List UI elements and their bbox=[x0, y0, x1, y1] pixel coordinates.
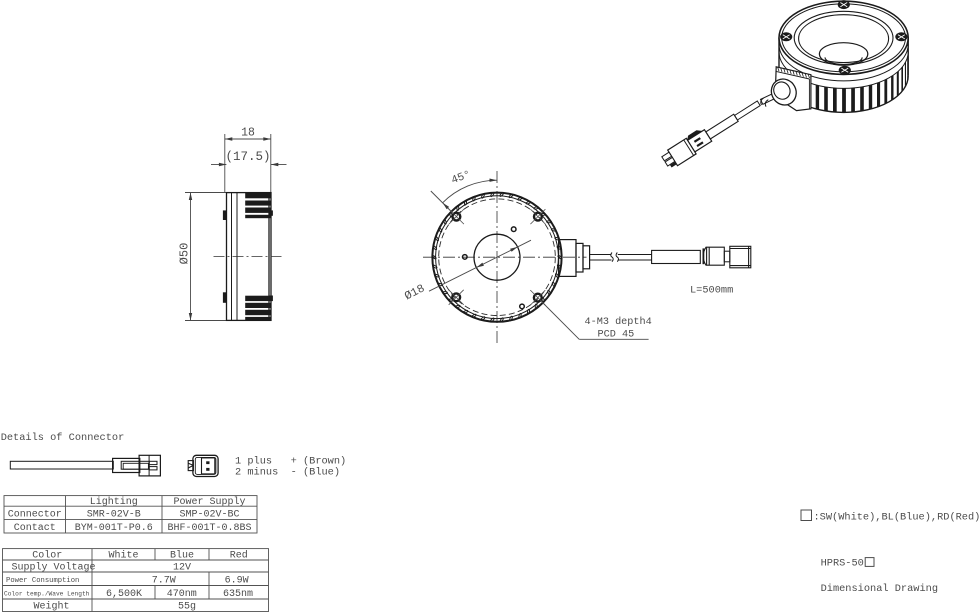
svg-text:Power Consumption: Power Consumption bbox=[6, 577, 79, 585]
svg-text:(17.5): (17.5) bbox=[225, 150, 270, 164]
svg-text:Connector: Connector bbox=[8, 510, 62, 521]
svg-text:Ø18: Ø18 bbox=[403, 282, 427, 303]
svg-text:Color: Color bbox=[32, 550, 62, 562]
svg-text:2 minus - (Blue): 2 minus - (Blue) bbox=[235, 466, 340, 478]
svg-text:SMP-02V-BC: SMP-02V-BC bbox=[179, 510, 239, 521]
svg-text:White: White bbox=[108, 550, 138, 562]
svg-text:45°: 45° bbox=[450, 169, 473, 187]
svg-text:Blue: Blue bbox=[170, 550, 194, 562]
svg-text:PCD 45: PCD 45 bbox=[598, 330, 635, 341]
svg-text:Power Supply: Power Supply bbox=[173, 496, 245, 508]
svg-text:Color temp./Wave Length: Color temp./Wave Length bbox=[4, 590, 90, 597]
svg-text:635nm: 635nm bbox=[223, 589, 253, 600]
svg-text:Red: Red bbox=[230, 550, 248, 562]
svg-text:Contact: Contact bbox=[14, 523, 56, 534]
svg-text:BHF-001T-0.8BS: BHF-001T-0.8BS bbox=[167, 523, 251, 534]
svg-text:SMR-02V-B: SMR-02V-B bbox=[87, 510, 141, 521]
svg-text:6.9W: 6.9W bbox=[225, 575, 249, 586]
svg-text:4-M3 depth4: 4-M3 depth4 bbox=[585, 316, 652, 328]
svg-text::SW(White),BL(Blue),RD(Red): :SW(White),BL(Blue),RD(Red) bbox=[814, 512, 980, 524]
svg-text:Lighting: Lighting bbox=[90, 496, 138, 508]
svg-text:18: 18 bbox=[241, 127, 255, 140]
svg-text:Dimensional Drawing: Dimensional Drawing bbox=[821, 583, 938, 595]
svg-text:HPRS-50: HPRS-50 bbox=[821, 558, 864, 570]
svg-text:12V: 12V bbox=[173, 562, 191, 573]
svg-text:470nm: 470nm bbox=[167, 589, 197, 600]
svg-text:55g: 55g bbox=[178, 602, 196, 613]
svg-text:L=500mm: L=500mm bbox=[690, 285, 733, 297]
svg-text:Weight: Weight bbox=[33, 601, 69, 613]
svg-text:6,500K: 6,500K bbox=[106, 589, 142, 600]
svg-text:Details of Connector: Details of Connector bbox=[1, 432, 125, 444]
svg-text:BYM-001T-P0.6: BYM-001T-P0.6 bbox=[75, 523, 153, 534]
svg-text:7.7W: 7.7W bbox=[152, 575, 176, 586]
svg-text:Supply Voltage: Supply Voltage bbox=[11, 561, 95, 573]
svg-text:Ø50: Ø50 bbox=[178, 243, 192, 265]
